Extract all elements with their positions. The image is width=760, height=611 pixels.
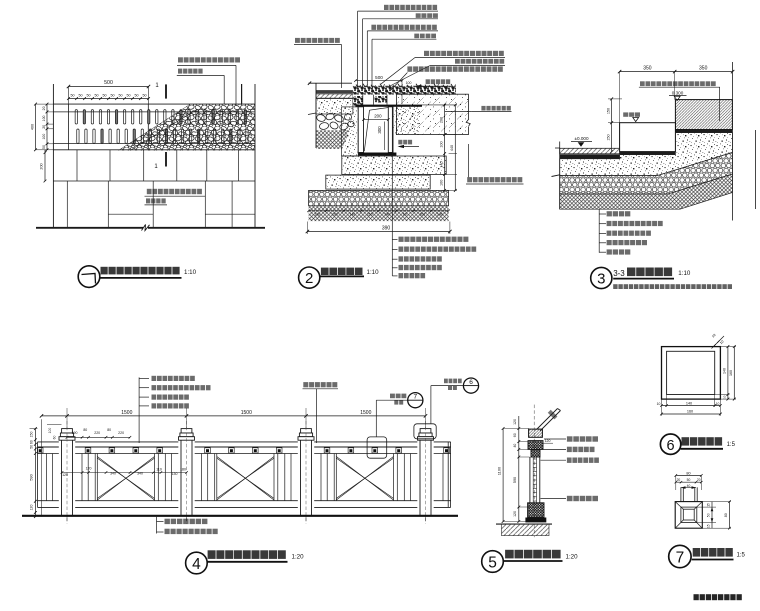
- svg-text:50: 50: [103, 94, 107, 98]
- svg-text:1:20: 1:20: [566, 553, 579, 560]
- svg-text:3-3: 3-3: [613, 269, 625, 278]
- svg-text:50: 50: [135, 94, 139, 98]
- svg-text:1:20: 1:20: [292, 553, 305, 560]
- svg-text:340: 340: [110, 472, 116, 476]
- svg-text:80: 80: [686, 471, 690, 475]
- svg-text:60: 60: [513, 433, 517, 437]
- svg-text:180: 180: [180, 467, 186, 471]
- svg-text:50: 50: [30, 445, 34, 449]
- svg-text:4: 4: [192, 556, 201, 573]
- svg-text:±0.000: ±0.000: [574, 136, 588, 141]
- svg-text:100: 100: [48, 428, 52, 434]
- svg-text:120: 120: [30, 505, 34, 511]
- svg-text:1500: 1500: [241, 410, 252, 416]
- svg-text:140: 140: [349, 213, 355, 217]
- svg-text:100: 100: [439, 141, 443, 147]
- svg-text:50: 50: [95, 94, 99, 98]
- svg-text:6: 6: [667, 438, 675, 454]
- svg-text:400: 400: [31, 124, 35, 130]
- svg-text:20: 20: [42, 106, 46, 110]
- svg-text:500: 500: [375, 75, 383, 80]
- svg-text:1:5: 1:5: [727, 442, 736, 448]
- svg-text:130: 130: [172, 472, 178, 476]
- svg-text:50: 50: [87, 94, 91, 98]
- svg-text:140: 140: [314, 213, 320, 217]
- svg-text:50: 50: [707, 513, 711, 517]
- svg-text:6: 6: [469, 379, 473, 386]
- svg-text:80: 80: [83, 428, 87, 432]
- svg-text:1500: 1500: [360, 410, 371, 416]
- svg-text:1100: 1100: [496, 466, 501, 475]
- svg-text:60: 60: [403, 213, 407, 217]
- svg-text:200: 200: [40, 163, 44, 169]
- svg-text:50: 50: [71, 94, 75, 98]
- svg-text:50: 50: [119, 94, 123, 98]
- svg-text:590: 590: [513, 477, 517, 483]
- svg-text:20: 20: [697, 478, 701, 482]
- svg-text:50: 50: [687, 478, 691, 482]
- svg-text:220: 220: [118, 431, 124, 435]
- svg-text:1:10: 1:10: [184, 269, 197, 276]
- svg-text:60: 60: [52, 436, 56, 440]
- svg-text:80: 80: [724, 513, 728, 517]
- svg-text:2: 2: [305, 270, 313, 287]
- svg-text:1:10: 1:10: [367, 269, 380, 276]
- svg-text:10: 10: [716, 402, 720, 406]
- svg-text:20: 20: [677, 478, 681, 482]
- svg-text:20: 20: [42, 125, 46, 129]
- svg-text:7: 7: [676, 550, 685, 567]
- svg-text:100: 100: [332, 213, 338, 217]
- svg-text:390: 390: [382, 225, 391, 231]
- svg-text:10: 10: [722, 395, 726, 399]
- svg-text:120: 120: [62, 473, 68, 477]
- svg-text:300: 300: [377, 126, 382, 134]
- svg-text:50: 50: [42, 145, 46, 149]
- svg-text:120: 120: [513, 419, 517, 425]
- svg-text:50: 50: [127, 94, 131, 98]
- svg-text:100: 100: [42, 115, 46, 121]
- svg-text:440: 440: [450, 145, 454, 151]
- svg-text:190: 190: [72, 431, 78, 435]
- svg-text:160: 160: [687, 409, 693, 413]
- svg-text:40: 40: [687, 484, 691, 488]
- svg-text:350: 350: [643, 66, 652, 72]
- svg-text:200: 200: [374, 114, 382, 119]
- svg-text:50: 50: [111, 94, 115, 98]
- svg-text:150: 150: [30, 432, 34, 438]
- svg-text:100: 100: [419, 213, 425, 217]
- svg-text:350: 350: [699, 66, 708, 72]
- svg-text:150: 150: [606, 134, 610, 140]
- svg-text:140: 140: [722, 368, 726, 374]
- svg-text:220: 220: [94, 431, 100, 435]
- svg-text:140: 140: [384, 213, 390, 217]
- svg-text:100: 100: [42, 134, 46, 140]
- svg-text:140: 140: [686, 402, 692, 406]
- svg-text:100: 100: [406, 81, 412, 85]
- svg-text:1500: 1500: [121, 410, 132, 416]
- svg-text:0.300: 0.300: [672, 90, 684, 95]
- svg-text:120: 120: [545, 439, 551, 443]
- svg-text:150: 150: [606, 108, 610, 114]
- svg-text:7: 7: [413, 393, 417, 400]
- svg-text:40: 40: [513, 444, 517, 448]
- svg-text:15: 15: [707, 503, 711, 507]
- svg-text:50: 50: [79, 94, 83, 98]
- svg-text:140: 140: [439, 161, 443, 167]
- svg-text:60: 60: [30, 440, 34, 444]
- svg-text:5: 5: [488, 554, 497, 571]
- svg-text:110: 110: [156, 467, 162, 471]
- svg-text:15: 15: [707, 524, 711, 528]
- svg-text:140: 140: [437, 213, 443, 217]
- svg-text:1:10: 1:10: [678, 270, 691, 277]
- svg-text:100: 100: [439, 180, 443, 186]
- svg-text:160: 160: [729, 370, 733, 376]
- svg-text:150: 150: [367, 213, 373, 217]
- svg-text:200: 200: [439, 117, 443, 123]
- svg-text:590: 590: [30, 474, 34, 480]
- svg-text:340: 340: [137, 472, 143, 476]
- svg-text:500: 500: [104, 80, 113, 86]
- svg-text:50: 50: [143, 94, 147, 98]
- svg-text:120: 120: [86, 467, 92, 471]
- svg-text:3: 3: [597, 271, 605, 288]
- svg-text:80: 80: [107, 428, 111, 432]
- svg-text:10: 10: [657, 402, 661, 406]
- svg-text:1:5: 1:5: [737, 553, 746, 559]
- svg-text:120: 120: [513, 511, 517, 517]
